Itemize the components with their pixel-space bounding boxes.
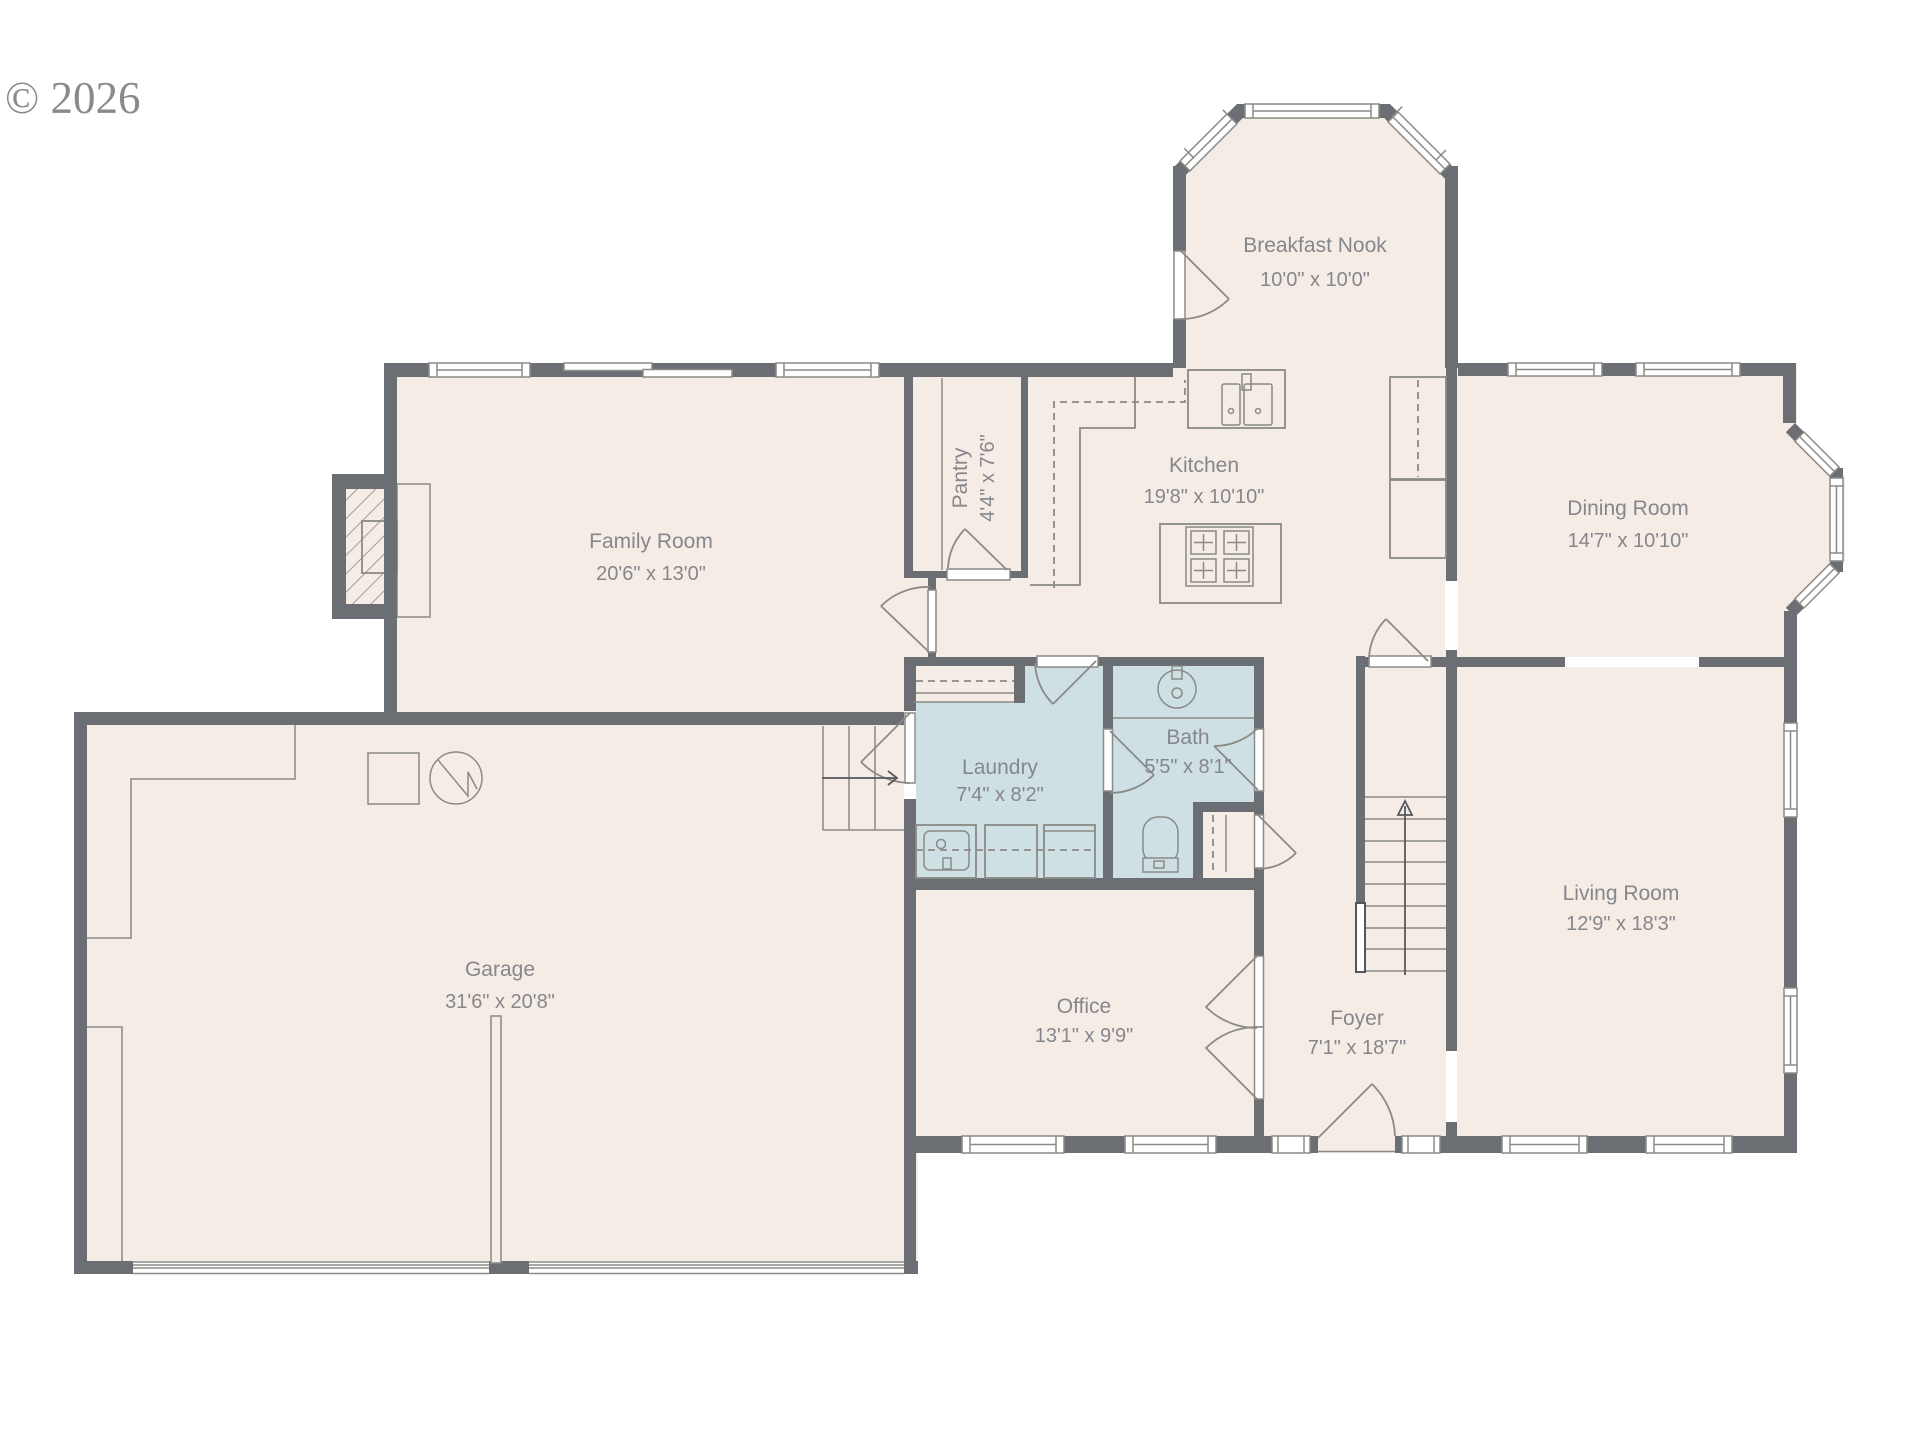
svg-text:Laundry: Laundry	[962, 756, 1038, 779]
svg-text:Office: Office	[1057, 995, 1111, 1018]
svg-text:Family Room: Family Room	[589, 530, 713, 553]
svg-text:14'7" x 10'10": 14'7" x 10'10"	[1568, 530, 1689, 552]
svg-text:19'8" x 10'10": 19'8" x 10'10"	[1144, 486, 1265, 508]
svg-text:Garage: Garage	[465, 958, 535, 981]
svg-text:7'4" x 8'2": 7'4" x 8'2"	[956, 784, 1043, 806]
svg-text:4'4" x 7'6": 4'4" x 7'6"	[977, 434, 999, 521]
svg-text:Kitchen: Kitchen	[1169, 454, 1239, 477]
svg-text:10'0" x 10'0": 10'0" x 10'0"	[1260, 269, 1370, 291]
svg-text:5'5" x 8'1": 5'5" x 8'1"	[1144, 756, 1231, 778]
svg-text:13'1" x 9'9": 13'1" x 9'9"	[1035, 1025, 1134, 1047]
svg-text:20'6" x 13'0": 20'6" x 13'0"	[596, 563, 706, 585]
svg-text:31'6" x 20'8": 31'6" x 20'8"	[445, 991, 555, 1013]
svg-text:Foyer: Foyer	[1330, 1007, 1384, 1030]
svg-text:© 2026: © 2026	[5, 73, 140, 123]
svg-text:Living Room: Living Room	[1563, 882, 1680, 905]
svg-text:Breakfast Nook: Breakfast Nook	[1243, 234, 1387, 257]
svg-text:Pantry: Pantry	[949, 447, 972, 508]
svg-text:Bath: Bath	[1166, 726, 1209, 749]
svg-text:Dining Room: Dining Room	[1567, 497, 1688, 520]
svg-text:7'1" x 18'7": 7'1" x 18'7"	[1308, 1037, 1407, 1059]
svg-text:12'9" x 18'3": 12'9" x 18'3"	[1566, 913, 1676, 935]
